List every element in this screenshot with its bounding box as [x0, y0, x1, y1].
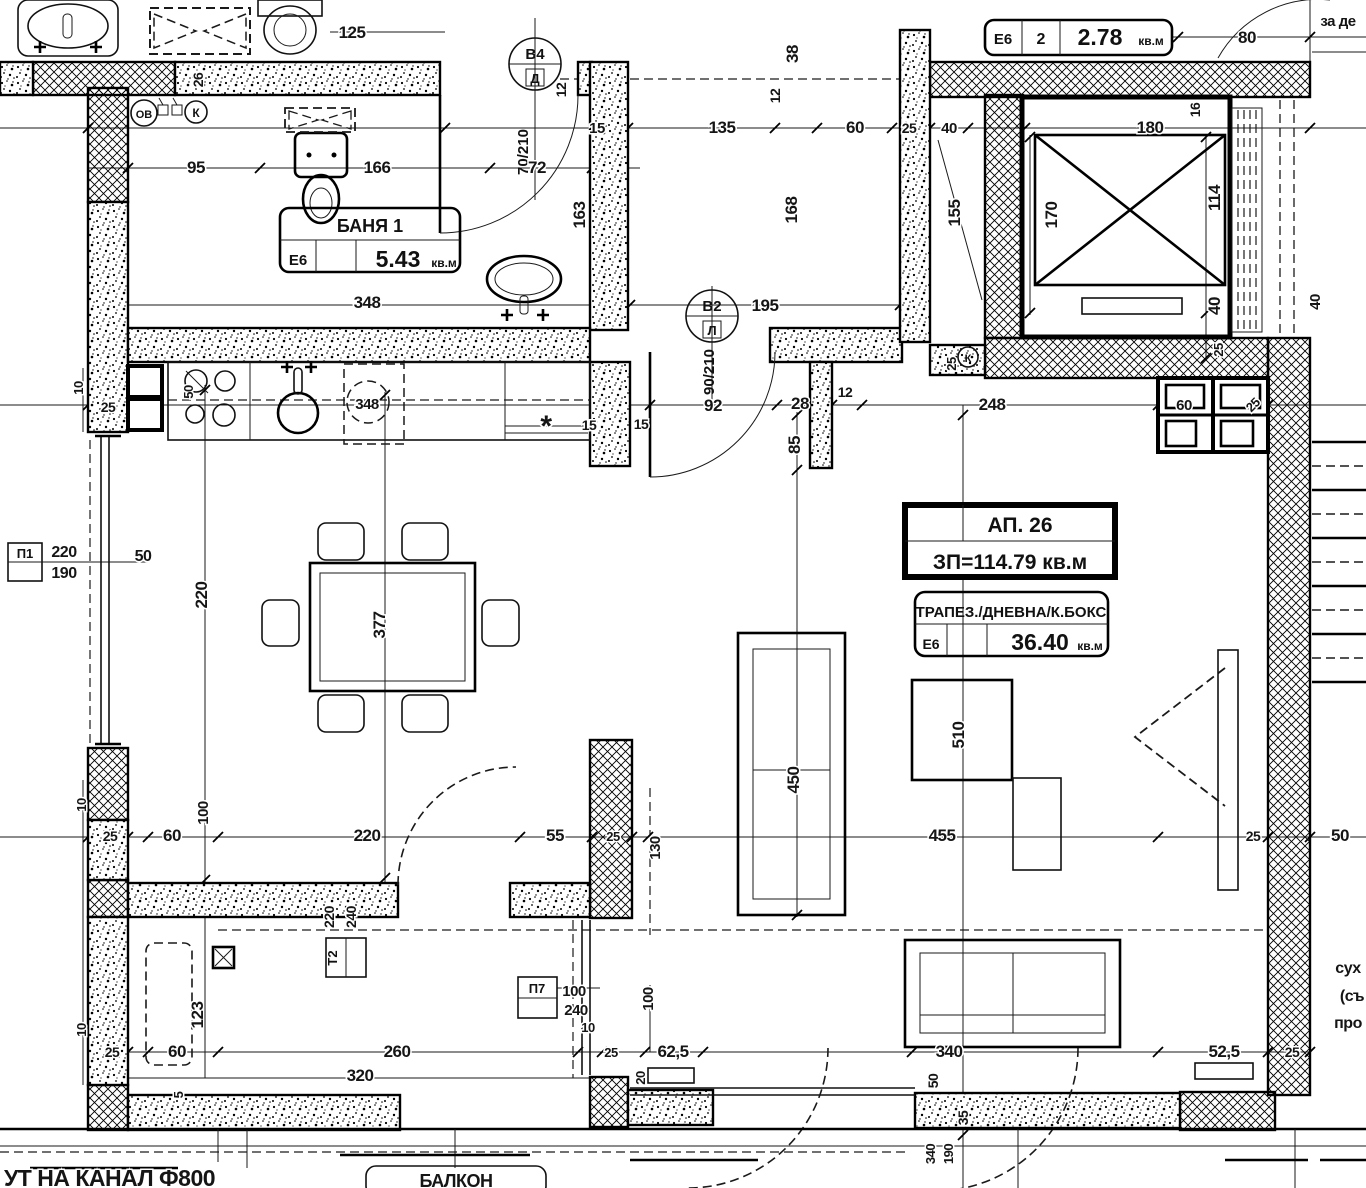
kitchen: [168, 361, 590, 444]
living-area-table: ТРАПЕЗ./ДНЕВНА/К.БОКС Е6 36.40 кв.м: [915, 592, 1108, 656]
door-storage-swing: [398, 767, 516, 885]
faucet: [294, 368, 302, 394]
dim-label: 240: [343, 905, 359, 928]
wall-kitchen-back: [128, 328, 590, 362]
dim-label: 450: [784, 767, 803, 794]
dim-label: 72: [528, 158, 546, 177]
window-id: П1: [17, 546, 34, 561]
dim-label: 95: [187, 158, 205, 177]
dim-label: 60: [846, 118, 864, 137]
dim-label: 340: [923, 1144, 938, 1164]
duct-box: [128, 366, 162, 397]
dining-table: [310, 563, 475, 691]
dim-label: 220: [321, 905, 337, 928]
dim-label: 38: [783, 45, 802, 63]
tap-handles: [34, 41, 102, 53]
dim-label: 25: [103, 828, 118, 844]
room-number: 2: [1037, 31, 1046, 48]
dim-label: 155: [945, 200, 964, 227]
dim-label: 260: [384, 1042, 411, 1061]
riser-heating: ОВ: [136, 109, 153, 121]
dim-label: 168: [782, 197, 801, 224]
dim-label: 135: [709, 118, 736, 137]
zone-code: Е6: [994, 31, 1012, 48]
dimension-labels: 12595166721513560254018080за де261238121…: [4, 13, 1364, 1188]
dim-label: 100: [640, 987, 657, 1011]
dim-label: *: [540, 410, 552, 443]
dim-label: 220: [192, 582, 211, 609]
dim-label: 55: [546, 826, 564, 845]
dim-label: 348: [354, 293, 381, 312]
chair: [262, 600, 299, 646]
dim-label: 12: [553, 82, 569, 97]
dim-label: 240: [564, 1002, 588, 1019]
dim-label: 455: [929, 826, 956, 845]
riser-markers: ОВ К К: [131, 98, 978, 367]
door-marker-b2: В2 Л 90/210: [686, 290, 738, 395]
windows: [95, 436, 915, 1095]
dim-label: 12: [838, 384, 853, 400]
dim-label: 130: [647, 836, 664, 860]
dim-label: 25: [105, 1044, 120, 1060]
hob-burner: [215, 371, 235, 391]
note-right: про: [1334, 1015, 1362, 1032]
dim-label: 50: [1331, 826, 1349, 845]
dim-label: 80: [1238, 28, 1256, 47]
room-area: 36.40: [1011, 629, 1069, 655]
door-leaf-type: Д: [530, 71, 540, 86]
dim-label: 15: [589, 120, 605, 137]
window-marker-p7: П7: [518, 977, 557, 1018]
dim-label: 16: [1187, 102, 1203, 117]
window-marker-p1: П1: [8, 543, 42, 581]
wall-left-pier: [88, 748, 128, 820]
room-area: 2.78: [1078, 24, 1123, 50]
riser-sewer: К: [965, 353, 972, 365]
window-id: П7: [529, 981, 546, 996]
toilet-neighbour: [264, 6, 316, 54]
kitchen-sink: [278, 393, 318, 433]
area-unit: кв.м: [1077, 639, 1103, 653]
dimension-ticks: [83, 32, 1315, 1140]
dim-label: 123: [188, 1002, 207, 1029]
chair: [318, 695, 364, 732]
stairs-right: [1312, 442, 1366, 682]
dim-label: 100: [562, 983, 586, 1000]
dim-label: 100: [195, 801, 212, 825]
wall-hall-side: [810, 362, 832, 468]
chair: [402, 695, 448, 732]
dim-label: 10: [74, 1023, 89, 1037]
door-size: 90/210: [701, 349, 718, 395]
floor-plan-sheet: БАНЯ 1 Е6 5.43 кв.м АП. 26 ЗП=114.79 кв.…: [0, 0, 1366, 1188]
apartment-area: ЗП=114.79 кв.м: [933, 551, 1087, 574]
wall-bath-top: [175, 62, 440, 95]
dim-label: 340: [936, 1042, 963, 1061]
dim-label: 377: [370, 612, 389, 639]
door-id: В2: [702, 298, 721, 315]
note-right: сух: [1335, 960, 1361, 977]
hob-burner: [186, 405, 204, 423]
area-unit: кв.м: [1138, 34, 1164, 48]
dim-label: 510: [949, 722, 968, 749]
note-right: (съ: [1340, 988, 1364, 1005]
wall-bottom-right-corner: [1180, 1092, 1275, 1130]
dim-label: 40: [1307, 294, 1324, 310]
dim-label: 163: [570, 202, 589, 229]
dim-label: 50: [925, 1073, 941, 1088]
riser-sewer: К: [192, 106, 200, 120]
toilet-tank: [295, 133, 347, 177]
dim-label: 85: [785, 436, 804, 454]
door-swing-top-right: [1218, 0, 1330, 58]
room-name: ТРАПЕЗ./ДНЕВНА/К.БОКС: [916, 604, 1107, 621]
dim-label: 180: [1137, 118, 1164, 137]
entrance-door-dashed: [1135, 668, 1225, 806]
threshold: [1195, 1063, 1253, 1079]
dim-label: 52,5: [1208, 1042, 1239, 1061]
dim-label: 10: [71, 381, 86, 395]
apartment-title-table: АП. 26 ЗП=114.79 кв.м: [905, 505, 1115, 577]
door-id: В4: [525, 46, 545, 63]
wall-bath-right: [590, 62, 628, 330]
window-height-label: 190: [51, 565, 77, 582]
dim-label: 50: [181, 385, 196, 399]
dim-label: 25: [944, 357, 959, 371]
markers: В4 Д 70/210 В2 Л 90/210 П1 П7 Т2: [8, 38, 978, 1018]
room-name: БАНЯ 1: [337, 216, 403, 236]
dim-label: 25: [1211, 343, 1226, 357]
dim-label: 25: [1285, 1044, 1300, 1060]
dim-label: 20: [633, 1071, 648, 1085]
dim-label: 166: [364, 158, 391, 177]
window-width-label: 220: [51, 544, 77, 561]
dim-label: 320: [347, 1066, 374, 1085]
dim-label: 125: [339, 23, 366, 42]
wall-bottom-left: [128, 1095, 400, 1130]
dim-label: 15: [582, 417, 597, 433]
wall-left-top: [88, 88, 128, 202]
dim-label: 220: [354, 826, 381, 845]
dim-label: 35: [955, 1110, 971, 1125]
apartment-number: АП. 26: [987, 514, 1052, 537]
panel-id: Т2: [325, 950, 340, 965]
zone-code: Е6: [922, 636, 939, 652]
dim-label: 25: [1246, 828, 1261, 844]
note-top-right: за де: [1320, 13, 1355, 30]
shelf-unit: [1218, 650, 1238, 890]
chair: [482, 600, 519, 646]
wall-hall-top: [770, 328, 902, 362]
wall-elevator-left: [985, 95, 1023, 338]
wall-lobby-left: [900, 30, 930, 342]
dim-label: 28: [791, 394, 809, 413]
wall-left-bottom: [88, 1085, 128, 1130]
dim-label: 40: [941, 120, 957, 137]
note-canal: УТ НА КАНАЛ Ф800: [4, 1165, 215, 1188]
wall-left-pier2: [88, 880, 128, 917]
dim-label: 25: [604, 1045, 618, 1060]
room-label-balcony: БАЛКОН: [419, 1171, 492, 1188]
threshold: [648, 1068, 694, 1083]
dim-label: 190: [941, 1144, 956, 1164]
dim-label: 40: [1205, 297, 1224, 315]
doors: [398, 0, 1330, 1188]
dim-label: 92: [704, 396, 722, 415]
duct-box: [128, 399, 162, 430]
wall-left-mid: [88, 202, 128, 432]
dim-label: 25: [606, 829, 620, 844]
dim-label: 62,5: [657, 1042, 688, 1061]
dim-label: 60: [1176, 397, 1192, 414]
wall-bottom-mid-pier: [590, 1077, 628, 1127]
door-b4-swing: [440, 95, 578, 233]
zone-code: Е6: [289, 252, 307, 269]
dim-label: 26: [190, 72, 206, 87]
chair: [318, 523, 364, 560]
panel-marker-t2: Т2: [325, 938, 366, 977]
dim-label: 248: [979, 395, 1006, 414]
toilet-bowl: [303, 175, 339, 223]
wall-right-exterior: [1268, 338, 1310, 1095]
bath-area-table: БАНЯ 1 Е6 5.43 кв.м: [280, 208, 460, 272]
chair: [402, 523, 448, 560]
hob-burner: [213, 404, 235, 426]
dim-label: 15: [634, 416, 649, 432]
hall-area-table: Е6 2 2.78 кв.м: [985, 20, 1172, 55]
tap-handles: [501, 309, 549, 321]
wall-top-right: [930, 62, 1310, 97]
dim-label: 5: [171, 1091, 186, 1098]
dim-label: 10: [74, 798, 89, 812]
dim-label: 114: [1205, 184, 1224, 211]
dim-label: 60: [163, 826, 181, 845]
door-leaf-type: Л: [707, 323, 716, 338]
vent-grille: [150, 8, 250, 54]
dim-label: 60: [168, 1042, 186, 1061]
dim-label: 170: [1042, 202, 1061, 229]
dim-label: 195: [752, 296, 779, 315]
area-unit: кв.м: [431, 256, 457, 270]
boiler-label: 348: [355, 396, 379, 413]
elevator-x-symbol: [1035, 135, 1225, 285]
dim-label: 25: [902, 120, 917, 136]
elevator-door: [1232, 108, 1262, 332]
side-table: [1013, 778, 1061, 870]
dim-label: 10: [581, 1020, 595, 1035]
window-p1-glass: [101, 436, 109, 744]
dim-label: 50: [135, 548, 152, 565]
dim-label: 12: [767, 88, 783, 103]
dim-label: 25: [101, 399, 116, 415]
room-area: 5.43: [376, 246, 421, 272]
floor-plan-drawing: БАНЯ 1 Е6 5.43 кв.м АП. 26 ЗП=114.79 кв.…: [0, 0, 1366, 1188]
